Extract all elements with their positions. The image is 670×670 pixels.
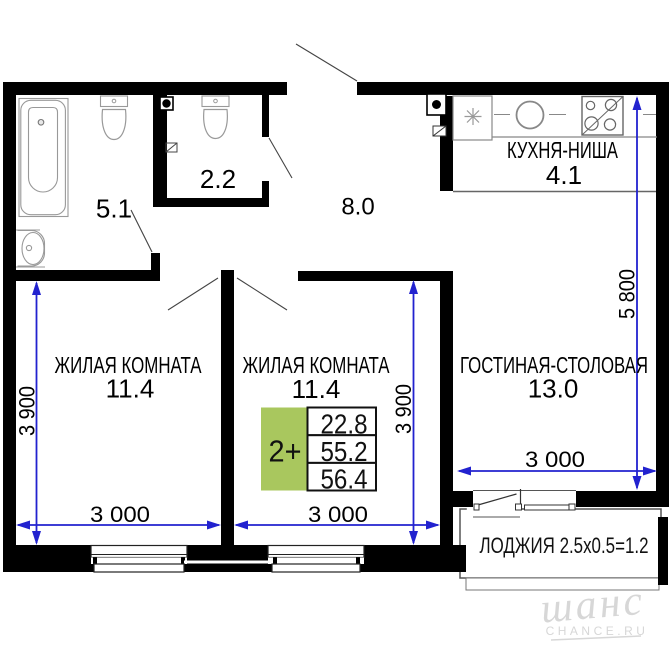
svg-text:3 000: 3 000 (308, 502, 368, 527)
svg-text:11.4: 11.4 (292, 374, 341, 404)
svg-text:3 000: 3 000 (90, 502, 150, 527)
svg-text:4.1: 4.1 (546, 160, 582, 190)
svg-text:3 900: 3 900 (391, 384, 416, 434)
svg-text:2+: 2+ (269, 434, 302, 469)
svg-text:55.2: 55.2 (321, 436, 368, 467)
svg-text:ЛОДЖИЯ 2.5x0.5=1.2: ЛОДЖИЯ 2.5x0.5=1.2 (480, 533, 649, 558)
svg-text:3 900: 3 900 (15, 386, 40, 436)
svg-text:11.4: 11.4 (106, 374, 155, 404)
svg-text:5.1: 5.1 (96, 194, 132, 224)
svg-text:22.8: 22.8 (321, 409, 368, 440)
svg-text:13.0: 13.0 (528, 374, 579, 404)
svg-text:2.2: 2.2 (200, 164, 236, 194)
svg-text:56.4: 56.4 (321, 464, 368, 495)
svg-text:5 800: 5 800 (615, 269, 640, 319)
svg-text:8.0: 8.0 (341, 194, 374, 221)
svg-text:3 000: 3 000 (525, 447, 585, 472)
